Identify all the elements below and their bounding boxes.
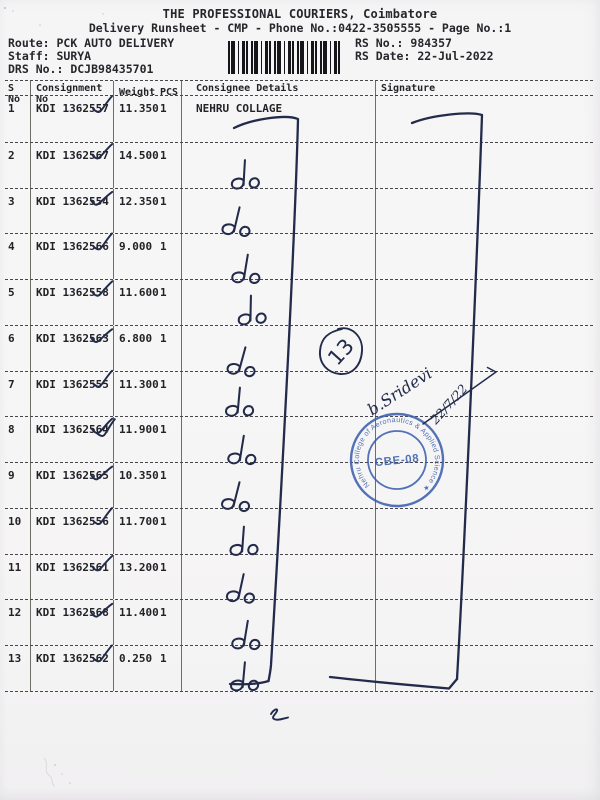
cell-consignment: KDI 1362557 (30, 96, 113, 142)
cell-sno: 13 (5, 646, 30, 691)
cell-weight-pcs: 12.3501 (113, 189, 181, 234)
table-row: 8KDI 136256411.9001 (5, 416, 593, 462)
shipment-meta-left: Route: PCK AUTO DELIVERY Staff: SURYA DR… (8, 37, 174, 75)
drs-value: DCJB98435701 (70, 62, 153, 76)
cell-weight: 0.250 (119, 652, 152, 665)
table-header: S No Consignment No Weight PCS Consignee… (5, 80, 593, 95)
cell-weight-pcs: 6.8001 (113, 326, 181, 371)
cell-pcs: 1 (160, 240, 167, 253)
rs-date-line: RS Date: 22-Jul-2022 (355, 50, 494, 63)
cell-sno: 5 (5, 280, 30, 325)
cell-weight: 11.350 (119, 102, 159, 115)
cell-weight-pcs: 11.7001 (113, 509, 181, 554)
cell-consignment: KDI 1362561 (30, 555, 113, 600)
cell-pcs: 1 (160, 102, 167, 115)
table-row: 5KDI 136255811.6001 (5, 279, 593, 325)
page-title: THE PROFESSIONAL COURIERS, Coimbatore (0, 7, 600, 21)
cell-sno: 6 (5, 326, 30, 371)
cell-weight: 12.350 (119, 195, 159, 208)
cell-weight: 11.700 (119, 515, 159, 528)
cell-weight: 11.300 (119, 378, 159, 391)
cell-consignment: KDI 1362564 (30, 417, 113, 462)
table-row: 4KDI 13625669.0001 (5, 233, 593, 279)
cell-weight: 14.500 (119, 149, 159, 162)
cell-pcs: 1 (160, 195, 167, 208)
cell-consignment: KDI 1362554 (30, 189, 113, 234)
table-row: 7KDI 136255511.3001 (5, 371, 593, 417)
cell-signature (375, 143, 593, 188)
cell-weight-pcs: 0.2501 (113, 646, 181, 691)
cell-consignment: KDI 1362562 (30, 646, 113, 691)
cell-weight-pcs: 11.3001 (113, 372, 181, 417)
cell-weight: 6.800 (119, 332, 152, 345)
cell-pcs: 1 (160, 149, 167, 162)
cell-sno: 9 (5, 463, 30, 508)
cell-weight-pcs: 14.5001 (113, 143, 181, 188)
rs-date-value: 22-Jul-2022 (417, 49, 493, 63)
cell-pcs: 1 (160, 332, 167, 345)
table-row: 10KDI 136255611.7001 (5, 508, 593, 554)
table-row: 9KDI 136256510.3501 (5, 462, 593, 508)
cell-consignee (181, 555, 375, 600)
cell-weight-pcs: 9.0001 (113, 234, 181, 279)
cell-consignee (181, 143, 375, 188)
cell-weight: 11.600 (119, 286, 159, 299)
cell-signature (375, 646, 593, 691)
cell-consignment: KDI 1362556 (30, 509, 113, 554)
cell-consignment: KDI 1362563 (30, 326, 113, 371)
cell-weight: 13.200 (119, 561, 159, 574)
bottom-scribble (271, 709, 288, 719)
table-row: 1KDI 136255711.3501NEHRU COLLAGE (5, 96, 593, 142)
cell-weight-pcs: 11.9001 (113, 417, 181, 462)
cell-pcs: 1 (160, 606, 167, 619)
cell-consignee (181, 326, 375, 371)
cell-consignment: KDI 1362568 (30, 600, 113, 645)
cell-weight-pcs: 11.3501 (113, 96, 181, 142)
cell-sno: 1 (5, 96, 30, 142)
cell-consignee (181, 600, 375, 645)
cell-signature (375, 326, 593, 371)
cell-signature (375, 417, 593, 462)
cell-weight-pcs: 11.4001 (113, 600, 181, 645)
cell-sno: 7 (5, 372, 30, 417)
cell-signature (375, 280, 593, 325)
runsheet-document: THE PROFESSIONAL COURIERS, Coimbatore De… (0, 0, 600, 800)
cell-sno: 12 (5, 600, 30, 645)
cell-consignee (181, 234, 375, 279)
cell-consignment: KDI 1362555 (30, 372, 113, 417)
cell-weight-pcs: 13.2001 (113, 555, 181, 600)
cell-sno: 11 (5, 555, 30, 600)
cell-weight: 11.400 (119, 606, 159, 619)
cell-consignee (181, 509, 375, 554)
cell-signature (375, 96, 593, 142)
cell-signature (375, 372, 593, 417)
cell-consignment: KDI 1362566 (30, 234, 113, 279)
table-row: 12KDI 136256811.4001 (5, 599, 593, 645)
cell-consignee: NEHRU COLLAGE (181, 96, 375, 142)
table-row: 13KDI 13625620.2501 (5, 645, 593, 691)
cell-weight: 9.000 (119, 240, 152, 253)
cell-consignee (181, 463, 375, 508)
cell-pcs: 1 (160, 469, 167, 482)
cell-pcs: 1 (160, 515, 167, 528)
cell-weight-pcs: 11.6001 (113, 280, 181, 325)
cell-pcs: 1 (160, 561, 167, 574)
cell-signature (375, 463, 593, 508)
drs-label: DRS No.: (8, 62, 63, 76)
cell-pcs: 1 (160, 423, 167, 436)
cell-pcs: 1 (160, 286, 167, 299)
cell-consignee (181, 189, 375, 234)
rs-date-label: RS Date: (355, 49, 410, 63)
cell-pcs: 1 (160, 378, 167, 391)
cell-signature (375, 509, 593, 554)
pencil-smudge (44, 758, 55, 786)
cell-weight: 11.900 (119, 423, 159, 436)
page-subtitle: Delivery Runsheet - CMP - Phone No.:0422… (0, 21, 600, 35)
cell-signature (375, 555, 593, 600)
cell-consignment: KDI 1362565 (30, 463, 113, 508)
cell-signature (375, 234, 593, 279)
table-row: 6KDI 13625636.8001 (5, 325, 593, 371)
cell-consignee (181, 280, 375, 325)
shipment-meta-right: RS No.: 984357 RS Date: 22-Jul-2022 (355, 37, 494, 63)
cell-signature (375, 189, 593, 234)
cell-sno: 4 (5, 234, 30, 279)
cell-consignment: KDI 1362558 (30, 280, 113, 325)
rs-no-value: 984357 (410, 36, 452, 50)
cell-sno: 3 (5, 189, 30, 234)
table-row: 3KDI 136255412.3501 (5, 188, 593, 234)
drs-line: DRS No.: DCJB98435701 (8, 63, 174, 76)
table-body: 1KDI 136255711.3501NEHRU COLLAGE2KDI 136… (5, 95, 593, 692)
cell-weight-pcs: 10.3501 (113, 463, 181, 508)
cell-pcs: 1 (160, 652, 167, 665)
barcode (228, 41, 342, 74)
cell-consignee (181, 646, 375, 691)
table-row: 11KDI 136256113.2001 (5, 554, 593, 600)
cell-sno: 10 (5, 509, 30, 554)
cell-consignee (181, 372, 375, 417)
cell-weight: 10.350 (119, 469, 159, 482)
rs-no-label: RS No.: (355, 36, 403, 50)
cell-signature (375, 600, 593, 645)
cell-sno: 8 (5, 417, 30, 462)
cell-sno: 2 (5, 143, 30, 188)
cell-consignee (181, 417, 375, 462)
table-row: 2KDI 136256714.5001 (5, 142, 593, 188)
cell-consignment: KDI 1362567 (30, 143, 113, 188)
